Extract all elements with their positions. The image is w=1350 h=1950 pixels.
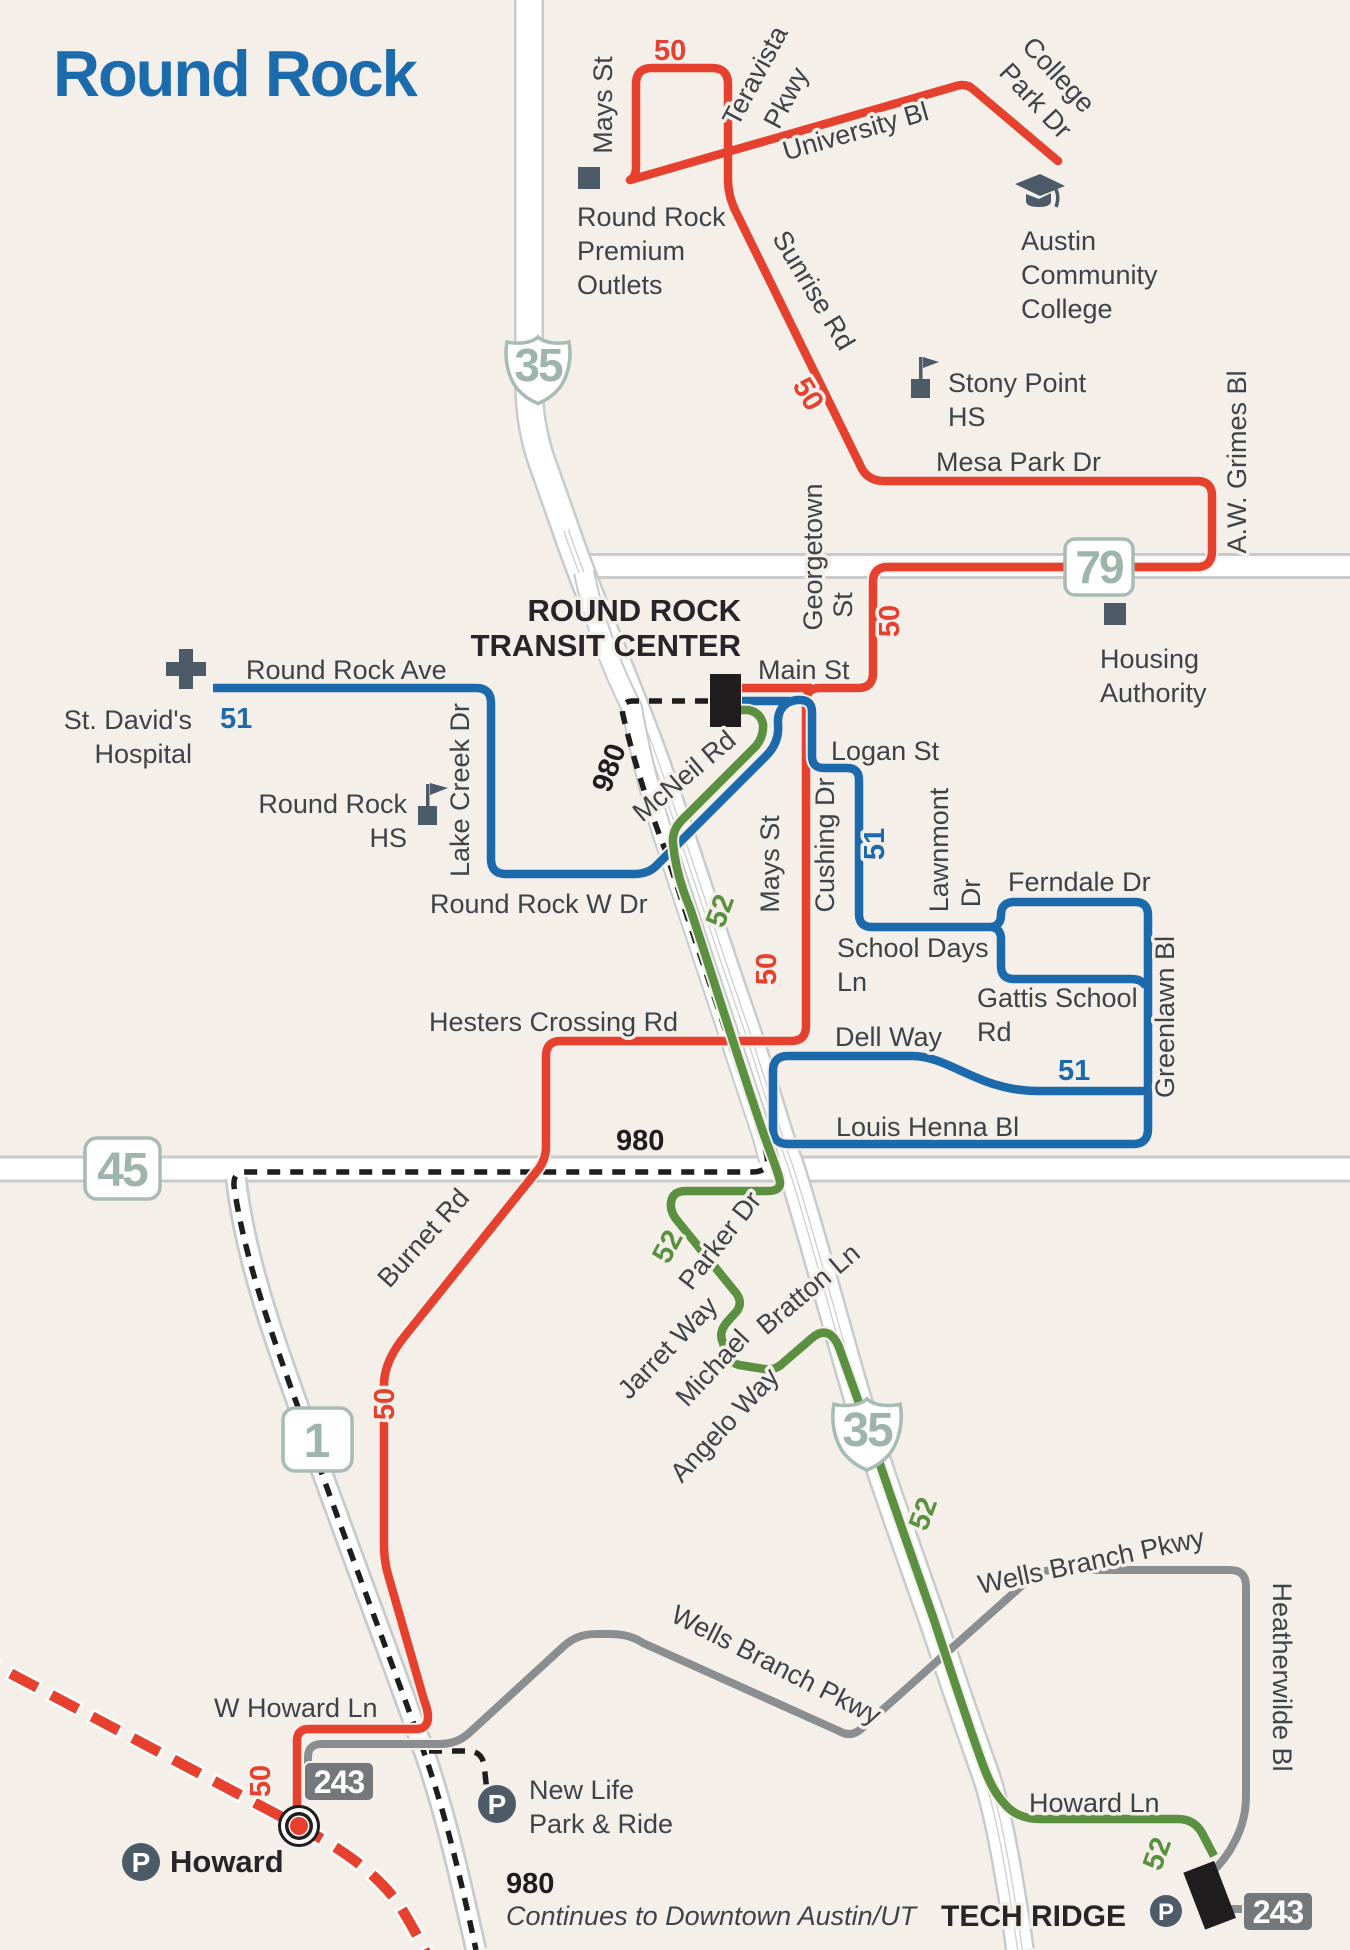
- svg-text:HS: HS: [369, 823, 407, 853]
- svg-text:A.W. Grimes Bl: A.W. Grimes Bl: [1222, 370, 1252, 553]
- svg-text:Hesters Crossing Rd: Hesters Crossing Rd: [429, 1007, 678, 1037]
- svg-text:Cushing Dr: Cushing Dr: [810, 777, 840, 912]
- svg-text:79: 79: [1075, 541, 1123, 593]
- svg-text:Ln: Ln: [837, 967, 867, 997]
- svg-text:1: 1: [304, 1415, 331, 1468]
- svg-text:Dr: Dr: [956, 879, 986, 908]
- svg-text:Ferndale Dr: Ferndale Dr: [1008, 867, 1151, 897]
- svg-text:Lawnmont: Lawnmont: [924, 787, 954, 912]
- svg-text:980: 980: [616, 1125, 664, 1157]
- svg-text:Greenlawn Bl: Greenlawn Bl: [1150, 936, 1180, 1098]
- svg-text:35: 35: [514, 339, 563, 391]
- svg-text:Georgetown: Georgetown: [798, 483, 828, 630]
- svg-text:St. David's: St. David's: [64, 705, 192, 735]
- svg-text:Round Rock: Round Rock: [577, 202, 726, 232]
- svg-text:Heatherwilde Bl: Heatherwilde Bl: [1267, 1582, 1297, 1771]
- svg-text:St: St: [828, 592, 858, 618]
- svg-text:ROUND ROCK: ROUND ROCK: [527, 593, 741, 628]
- svg-text:980: 980: [506, 1868, 554, 1900]
- svg-text:Lake Creek Dr: Lake Creek Dr: [445, 703, 475, 877]
- svg-text:50: 50: [751, 953, 783, 985]
- svg-text:51: 51: [1058, 1055, 1090, 1087]
- svg-text:Gattis School: Gattis School: [977, 983, 1138, 1013]
- svg-text:243: 243: [1253, 1894, 1304, 1930]
- svg-text:Premium: Premium: [577, 236, 685, 266]
- svg-text:Mesa Park Dr: Mesa Park Dr: [936, 447, 1101, 477]
- svg-text:TECH RIDGE: TECH RIDGE: [941, 1900, 1126, 1933]
- svg-text:Round Rock: Round Rock: [258, 789, 407, 819]
- svg-text:243: 243: [314, 1764, 365, 1800]
- svg-text:35: 35: [842, 1404, 893, 1457]
- svg-text:Authority: Authority: [1100, 678, 1207, 708]
- svg-text:50: 50: [874, 605, 906, 637]
- svg-text:Round Rock W Dr: Round Rock W Dr: [430, 889, 648, 919]
- svg-text:Round Rock Ave: Round Rock Ave: [246, 655, 447, 685]
- svg-text:Louis Henna Bl: Louis Henna Bl: [836, 1112, 1019, 1142]
- svg-text:50: 50: [654, 35, 686, 67]
- svg-text:Main St: Main St: [758, 655, 850, 685]
- svg-text:P: P: [488, 1789, 507, 1820]
- svg-text:HS: HS: [948, 402, 986, 432]
- svg-text:Round Rock: Round Rock: [53, 37, 419, 110]
- svg-text:College: College: [1021, 294, 1113, 324]
- svg-text:P: P: [132, 1847, 151, 1878]
- svg-text:51: 51: [220, 703, 252, 735]
- svg-text:W Howard Ln: W Howard Ln: [214, 1693, 378, 1723]
- svg-text:Austin: Austin: [1021, 226, 1096, 256]
- svg-text:50: 50: [245, 1765, 277, 1797]
- svg-text:45: 45: [97, 1144, 148, 1197]
- svg-text:Dell Way: Dell Way: [835, 1022, 943, 1052]
- svg-text:50: 50: [369, 1388, 401, 1420]
- svg-text:P: P: [1158, 1899, 1174, 1926]
- svg-text:Stony Point: Stony Point: [948, 368, 1087, 398]
- svg-text:Rd: Rd: [977, 1017, 1012, 1047]
- svg-text:Logan St: Logan St: [831, 736, 940, 766]
- svg-text:51: 51: [859, 828, 891, 860]
- svg-text:Continues to Downtown Austin/U: Continues to Downtown Austin/UT: [506, 1901, 919, 1931]
- svg-text:Housing: Housing: [1100, 644, 1199, 674]
- svg-text:Park & Ride: Park & Ride: [529, 1809, 673, 1839]
- svg-text:Mays St: Mays St: [755, 815, 785, 913]
- svg-text:Hospital: Hospital: [94, 739, 192, 769]
- svg-text:Mays St: Mays St: [588, 56, 618, 154]
- svg-text:New Life: New Life: [529, 1775, 634, 1805]
- svg-text:Outlets: Outlets: [577, 270, 663, 300]
- svg-text:TRANSIT CENTER: TRANSIT CENTER: [471, 628, 741, 663]
- svg-text:Howard Ln: Howard Ln: [1029, 1788, 1160, 1818]
- svg-text:Howard: Howard: [170, 1844, 284, 1879]
- svg-text:Community: Community: [1021, 260, 1158, 290]
- svg-text:School Days: School Days: [837, 933, 989, 963]
